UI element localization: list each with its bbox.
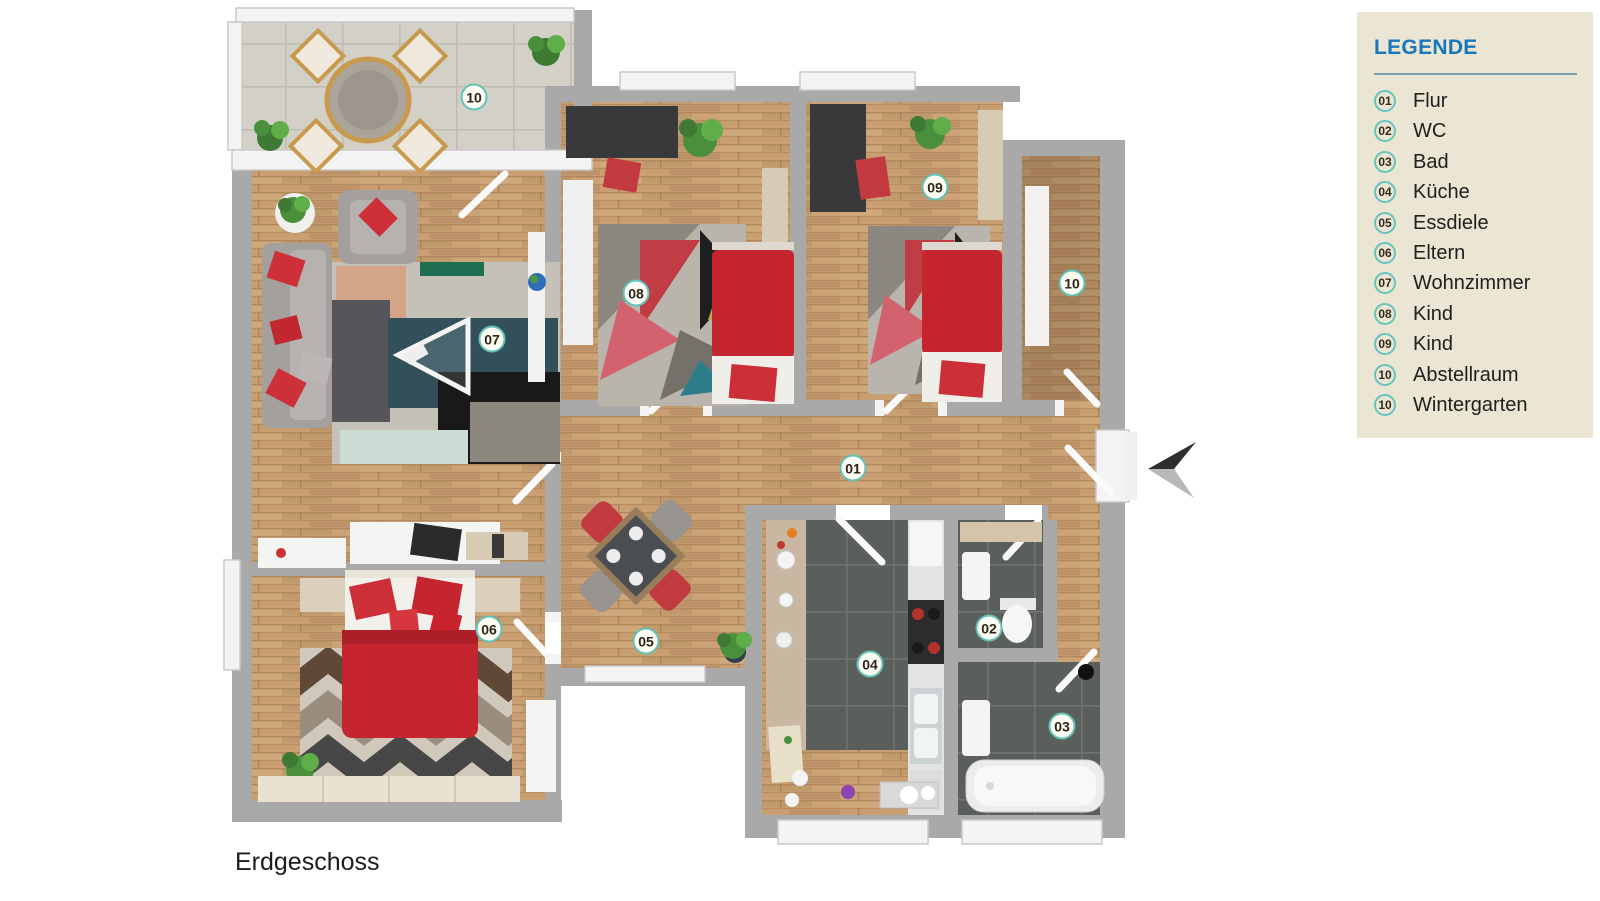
- legend-item-number: 10: [1374, 394, 1396, 416]
- shelf: [528, 232, 545, 382]
- legend-item-abstellraum: 10 Abstellraum: [1374, 364, 1577, 386]
- desk: [566, 106, 678, 158]
- legend-item-eltern: 06 Eltern: [1374, 242, 1577, 264]
- legend-item-number: 07: [1374, 272, 1396, 294]
- sofa: [262, 243, 332, 428]
- laptop: [410, 523, 462, 561]
- window-essdiele: [585, 666, 705, 682]
- legend-item-number: 04: [1374, 181, 1396, 203]
- room-badge-essdiele: 05: [633, 628, 660, 655]
- kueche-tile-floor: [806, 520, 910, 750]
- wardrobe: [978, 110, 1003, 220]
- closet: [563, 180, 593, 345]
- room-badge-kind-1: 08: [623, 280, 650, 307]
- wall-topright-step: [1003, 140, 1125, 156]
- bath-sink: [962, 700, 990, 756]
- legend-item-label: Abstellraum: [1413, 364, 1519, 386]
- window-bad: [962, 820, 1102, 844]
- room-badge-eltern: 06: [476, 616, 503, 643]
- legend-item-number: 02: [1374, 120, 1396, 142]
- stove: [908, 600, 944, 664]
- floorplan-page: 1007080910010506040203 LEGENDE 01 Flur 0…: [0, 0, 1600, 901]
- legend-item-label: Küche: [1413, 181, 1470, 203]
- room-badge-wintergarten: 10: [461, 84, 488, 111]
- window-wintergarten-top: [236, 8, 574, 22]
- floor-drain: [1078, 664, 1094, 680]
- wall-bottom-left: [232, 800, 562, 822]
- legend-item-label: Flur: [1413, 90, 1447, 112]
- legend-item-wohnzimmer: 07 Wohnzimmer: [1374, 272, 1577, 294]
- globe: [528, 273, 546, 291]
- legend-item-bad: 03 Bad: [1374, 151, 1577, 173]
- legend-item-label: Wohnzimmer: [1413, 272, 1530, 294]
- legend-item-number: 09: [1374, 333, 1396, 355]
- legend-divider: [1374, 73, 1577, 75]
- legend-item-number: 03: [1374, 151, 1396, 173]
- room-badge-kueche: 04: [857, 651, 884, 678]
- bed: [712, 242, 794, 404]
- storage-shelf: [1025, 186, 1049, 346]
- legend-item-küche: 04 Küche: [1374, 181, 1577, 203]
- legend-item-label: Wintergarten: [1413, 394, 1528, 416]
- legend-title: LEGENDE: [1374, 36, 1577, 60]
- window-wintergarten-left: [228, 22, 242, 150]
- wardrobe: [258, 776, 520, 802]
- abstellraum-furniture: [1025, 186, 1049, 346]
- room-badge-wc: 02: [976, 615, 1003, 642]
- room-badge-flur: 01: [840, 455, 867, 482]
- legend-panel: LEGENDE 01 Flur 02 WC 03 Bad 04 Küche 05…: [1357, 12, 1593, 438]
- legend-item-kind: 08 Kind: [1374, 303, 1577, 325]
- nightstand: [300, 578, 346, 612]
- wall-left-outer: [232, 150, 252, 822]
- wall-wc-right: [1043, 520, 1057, 648]
- wall-abstellraum-left: [1003, 156, 1022, 400]
- fridge: [910, 522, 942, 566]
- legend-item-essdiele: 05 Essdiele: [1374, 212, 1577, 234]
- window-eltern-left: [224, 560, 240, 670]
- toilet: [1002, 605, 1032, 643]
- sideboard: [258, 538, 346, 568]
- room-badge-abstellraum: 10: [1059, 270, 1086, 297]
- legend-item-label: Eltern: [1413, 242, 1465, 264]
- window-kind2: [800, 72, 915, 90]
- legend-item-number: 08: [1374, 303, 1396, 325]
- legend-item-kind: 09 Kind: [1374, 333, 1577, 355]
- wall-kueche-bad: [944, 520, 958, 815]
- floor-label: Erdgeschoss: [235, 848, 380, 877]
- legend-item-flur: 01 Flur: [1374, 90, 1577, 112]
- legend-item-number: 05: [1374, 212, 1396, 234]
- legend-item-label: Kind: [1413, 303, 1453, 325]
- wall-top-kinderzimmer: [545, 86, 1020, 102]
- legend-item-number: 06: [1374, 242, 1396, 264]
- wc-sink: [962, 552, 990, 600]
- legend-list: 01 Flur 02 WC 03 Bad 04 Küche 05 Essdiel…: [1374, 90, 1577, 416]
- legend-item-wintergarten: 10 Wintergarten: [1374, 394, 1577, 416]
- entry-arrow: [1148, 442, 1196, 498]
- room-badge-wohnzimmer: 07: [479, 326, 506, 353]
- legend-item-wc: 02 WC: [1374, 120, 1577, 142]
- legend-item-number: 10: [1374, 364, 1396, 386]
- legend-item-label: WC: [1413, 120, 1446, 142]
- desk: [810, 104, 866, 212]
- nightstand: [474, 578, 520, 612]
- desk-chair: [855, 156, 890, 200]
- plant: [275, 193, 315, 233]
- desk-chair: [603, 157, 642, 192]
- living-rug: [332, 262, 560, 464]
- wall-kueche-left: [745, 505, 762, 838]
- legend-item-label: Essdiele: [1413, 212, 1489, 234]
- window-kueche: [778, 820, 928, 844]
- wc-shelf: [960, 522, 1042, 542]
- room-badge-kind-2: 09: [922, 174, 949, 201]
- dresser: [526, 700, 556, 792]
- legend-item-number: 01: [1374, 90, 1396, 112]
- window-kind1: [620, 72, 735, 90]
- legend-item-label: Kind: [1413, 333, 1453, 355]
- room-badge-bad: 03: [1049, 713, 1076, 740]
- armchair: [338, 190, 418, 264]
- bed: [922, 242, 1002, 402]
- detergent: [841, 785, 855, 799]
- wall-wc-bad: [944, 648, 1058, 662]
- legend-item-label: Bad: [1413, 151, 1449, 173]
